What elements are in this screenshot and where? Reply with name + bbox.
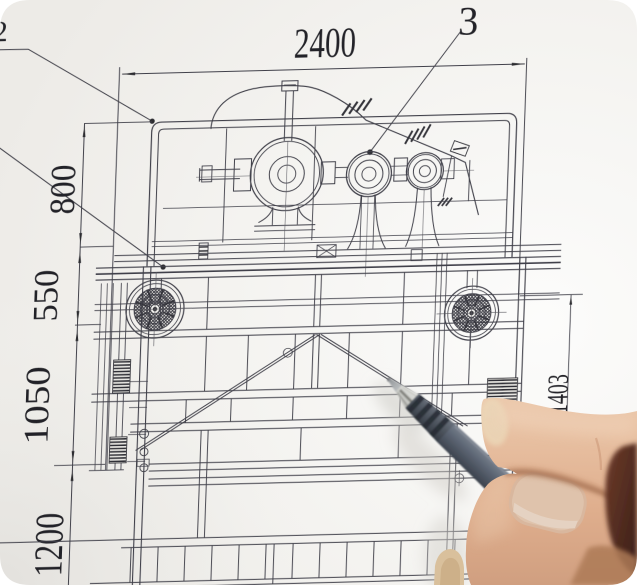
- svg-text:550: 550: [25, 269, 66, 322]
- svg-text:2: 2: [0, 15, 8, 48]
- svg-text:1050: 1050: [16, 366, 58, 445]
- svg-text:1200: 1200: [25, 512, 72, 577]
- svg-text:800: 800: [42, 164, 84, 215]
- svg-text:3: 3: [458, 0, 480, 43]
- svg-text:2400: 2400: [293, 20, 357, 68]
